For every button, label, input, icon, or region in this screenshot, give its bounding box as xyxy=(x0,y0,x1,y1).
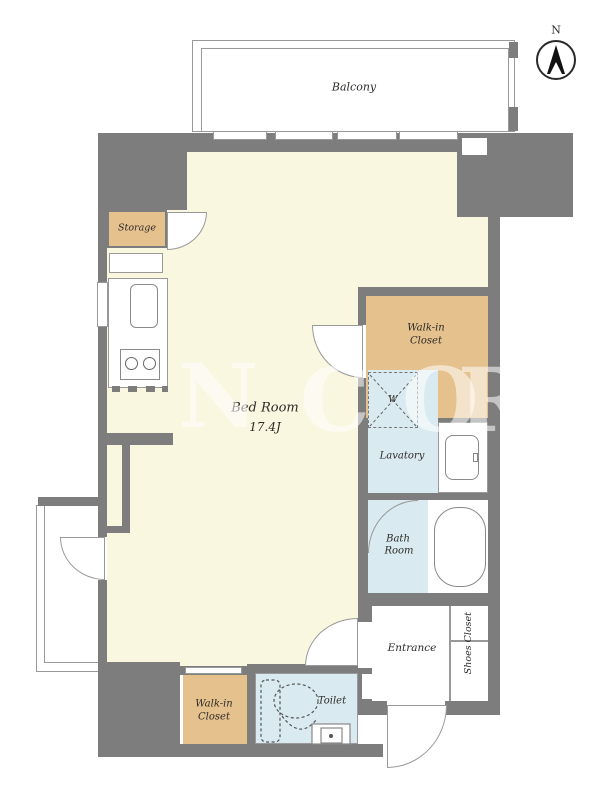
walk-in-closet-upper-label-line1: Walk-in xyxy=(407,322,444,334)
lavatory-label: Lavatory xyxy=(380,450,425,462)
bathroom-label-line1: Bath xyxy=(386,533,410,545)
toilet-basin-drain xyxy=(329,734,333,738)
compass-icon xyxy=(536,40,576,80)
compass-needle-notch xyxy=(550,62,562,74)
fixture-overlay xyxy=(0,0,600,800)
balcony-label: Balcony xyxy=(332,82,376,95)
washer-label: W xyxy=(388,395,397,405)
walk-in-closet-lower-label-line2: Closet xyxy=(198,711,230,723)
walk-in-closet-lower-label-line1: Walk-in xyxy=(195,698,232,710)
walk-in-closet-upper-label-line2: Closet xyxy=(410,335,442,347)
toilet-tank xyxy=(261,680,280,742)
bathroom-label-line2: Room xyxy=(384,545,413,557)
toilet-bowl-lower xyxy=(282,716,316,729)
toilet-label: Toilet xyxy=(318,695,346,707)
entrance-label: Entrance xyxy=(388,642,437,654)
storage-label: Storage xyxy=(118,224,156,235)
shoes-closet-label: Shoes Closet xyxy=(463,612,474,674)
bedroom-size-label: 17.4J xyxy=(249,421,281,435)
compass-north-label: N xyxy=(551,25,561,38)
bedroom-name-label: Bed Room xyxy=(231,402,298,417)
floor-plan: Balcony Storage Bed Room 17.4J Walk-in C… xyxy=(0,0,600,800)
